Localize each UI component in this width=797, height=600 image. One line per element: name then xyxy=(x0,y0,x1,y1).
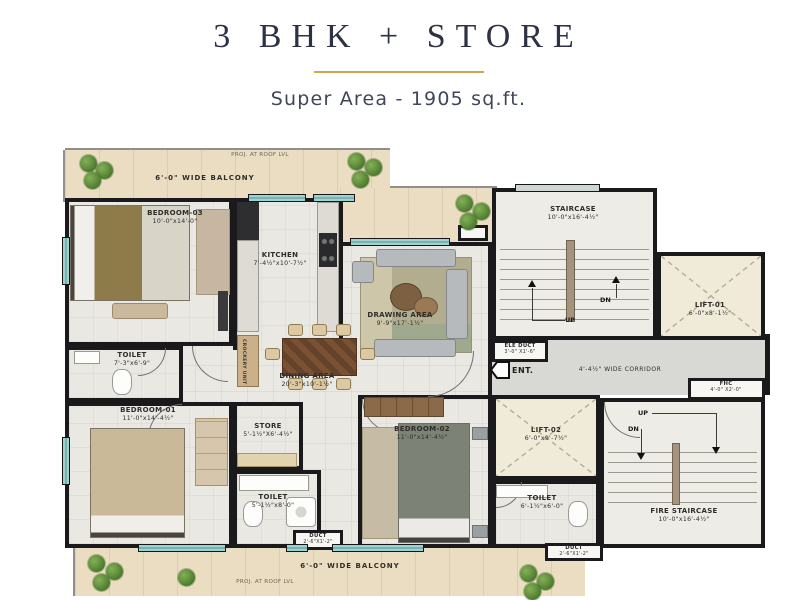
kitchen-counter xyxy=(317,202,339,332)
page-title: 3 BHK + STORE xyxy=(0,18,797,56)
bedroom-02-label: BEDROOM-02 11'-0"x14'-4½" xyxy=(394,425,450,443)
store-label: STORE 5'-1½"X6'-4½" xyxy=(243,422,292,440)
bedroom-01-label: BEDROOM-01 11'-0"x14'-4½" xyxy=(120,406,176,424)
down-arrow-icon xyxy=(637,453,645,460)
sofa-icon xyxy=(376,249,456,267)
wardrobe-icon xyxy=(364,397,444,417)
window xyxy=(313,194,355,202)
entrance-arrow-icon xyxy=(490,361,510,379)
staircase-label: STAIRCASE 10'-0"x16'-4½" xyxy=(547,205,598,223)
staircase-rail xyxy=(566,240,575,322)
bathtub-icon xyxy=(239,475,309,491)
page-subtitle: Super Area - 1905 sq.ft. xyxy=(0,88,797,110)
plant-icon xyxy=(88,555,105,572)
gold-divider xyxy=(314,71,484,73)
fire-staircase-treads xyxy=(608,443,757,505)
plant-icon xyxy=(460,213,477,230)
stove-icon xyxy=(319,233,337,267)
plant-icon xyxy=(365,159,382,176)
plant-icon xyxy=(352,171,369,188)
armchair-icon xyxy=(352,261,374,283)
fridge-icon xyxy=(237,202,259,240)
stair-leader-line xyxy=(532,320,565,321)
top-proj-label: PROJ. AT ROOF LVL xyxy=(231,152,289,160)
staircase-up-label: UP xyxy=(565,316,575,324)
crockery-unit-label: CROCKERY UNIT xyxy=(241,339,246,384)
sofa-icon xyxy=(446,269,468,339)
tv-unit-icon xyxy=(218,291,228,331)
window xyxy=(62,237,70,285)
window xyxy=(138,544,226,552)
nightstand-icon xyxy=(472,427,488,440)
dining-table-icon xyxy=(282,338,357,376)
chair-icon xyxy=(336,324,351,336)
nightstand-icon xyxy=(472,525,488,538)
window xyxy=(332,544,424,552)
wc-icon xyxy=(112,369,132,395)
plant-icon xyxy=(84,172,101,189)
plant-icon xyxy=(93,574,110,591)
shelf-icon xyxy=(237,453,297,467)
lift-cross-icon xyxy=(661,256,761,336)
window xyxy=(350,238,450,246)
plant-icon xyxy=(348,153,365,170)
sink-icon xyxy=(74,351,100,364)
sofa-icon xyxy=(374,339,456,357)
window xyxy=(515,184,600,192)
lift-01-label: LIFT-01 6'-0"x8'-1½" xyxy=(689,301,732,319)
plant-icon xyxy=(456,195,473,212)
down-arrow-icon xyxy=(712,447,720,454)
wc-icon xyxy=(568,501,588,527)
ele-duct-label: ELE DUCT 3'-0" X1'-6" xyxy=(504,343,535,357)
toilet-3-label: TOILET 6'-1½"x6'-0" xyxy=(521,494,564,512)
floor-plan-page: 3 BHK + STORE Super Area - 1905 sq.ft. xyxy=(0,0,797,600)
stair-leader-line xyxy=(532,288,533,320)
bottom-proj-label: PROJ. AT ROOF LVL xyxy=(236,579,294,587)
rug-icon xyxy=(362,427,400,539)
window xyxy=(248,194,306,202)
plant-icon xyxy=(524,583,541,600)
bench-icon xyxy=(112,303,168,319)
drawing-area-label: DRAWING AREA 9'-9"x17'-1½" xyxy=(367,311,432,329)
stair-leader-line xyxy=(716,413,717,447)
lift-02-label: LIFT-02 6'-0"x9'-7½" xyxy=(525,426,568,444)
fire-staircase-label: FIRE STAIRCASE 10'-0"x16'-4½" xyxy=(650,507,717,525)
dining-area-label: DINING AREA 20'-3"x10'-1½" xyxy=(279,372,334,390)
duct-label: DUCT 2'-6"X1'-2" xyxy=(559,545,588,559)
bottom-balcony-label: 6'-0" WIDE BALCONY xyxy=(300,562,399,571)
stair-leader-line xyxy=(616,284,617,298)
stair-leader-line xyxy=(652,413,716,414)
corridor-label: 4'-4½" WIDE CORRIDOR xyxy=(579,366,661,374)
chair-icon xyxy=(360,348,375,360)
toilet-1-label: TOILET 7'-3"x6'-9" xyxy=(114,351,150,369)
entrance-label: ENT. xyxy=(512,366,533,375)
floor-plan-canvas: CROCKERY UNIT xyxy=(60,145,772,600)
chair-icon xyxy=(312,324,327,336)
bottom-balcony xyxy=(75,548,585,596)
wardrobe-icon xyxy=(195,418,228,486)
chair-icon xyxy=(288,324,303,336)
toilet-2-label: TOILET 5'-1½"x8'-0" xyxy=(252,493,295,511)
bedroom-03-label: BEDROOM-03 10'-0"x14'-0" xyxy=(147,209,203,227)
fhc-label: FHC 4'-0" X2'-0" xyxy=(710,381,741,395)
plant-icon xyxy=(178,569,195,586)
plant-icon xyxy=(80,155,97,172)
plant-icon xyxy=(520,565,537,582)
kitchen-label: KITCHEN 7'-4½"x10'-7½" xyxy=(253,251,306,269)
room-lift-01 xyxy=(657,252,765,340)
chair-icon xyxy=(265,348,280,360)
fire-staircase-rail xyxy=(672,443,680,505)
fire-staircase-dn-label: DN xyxy=(628,425,639,433)
up-arrow-icon xyxy=(612,276,620,283)
bed-icon xyxy=(90,428,185,538)
up-arrow-icon xyxy=(528,280,536,287)
window xyxy=(62,437,70,485)
chair-icon xyxy=(336,378,351,390)
staircase-dn-label: DN xyxy=(600,296,611,304)
fire-staircase-up-label: UP xyxy=(638,409,648,417)
stair-leader-line xyxy=(641,429,642,453)
duct-label: DUCT 2'-6"X1'-2" xyxy=(303,533,332,547)
top-balcony-label: 6'-0" WIDE BALCONY xyxy=(155,174,254,183)
